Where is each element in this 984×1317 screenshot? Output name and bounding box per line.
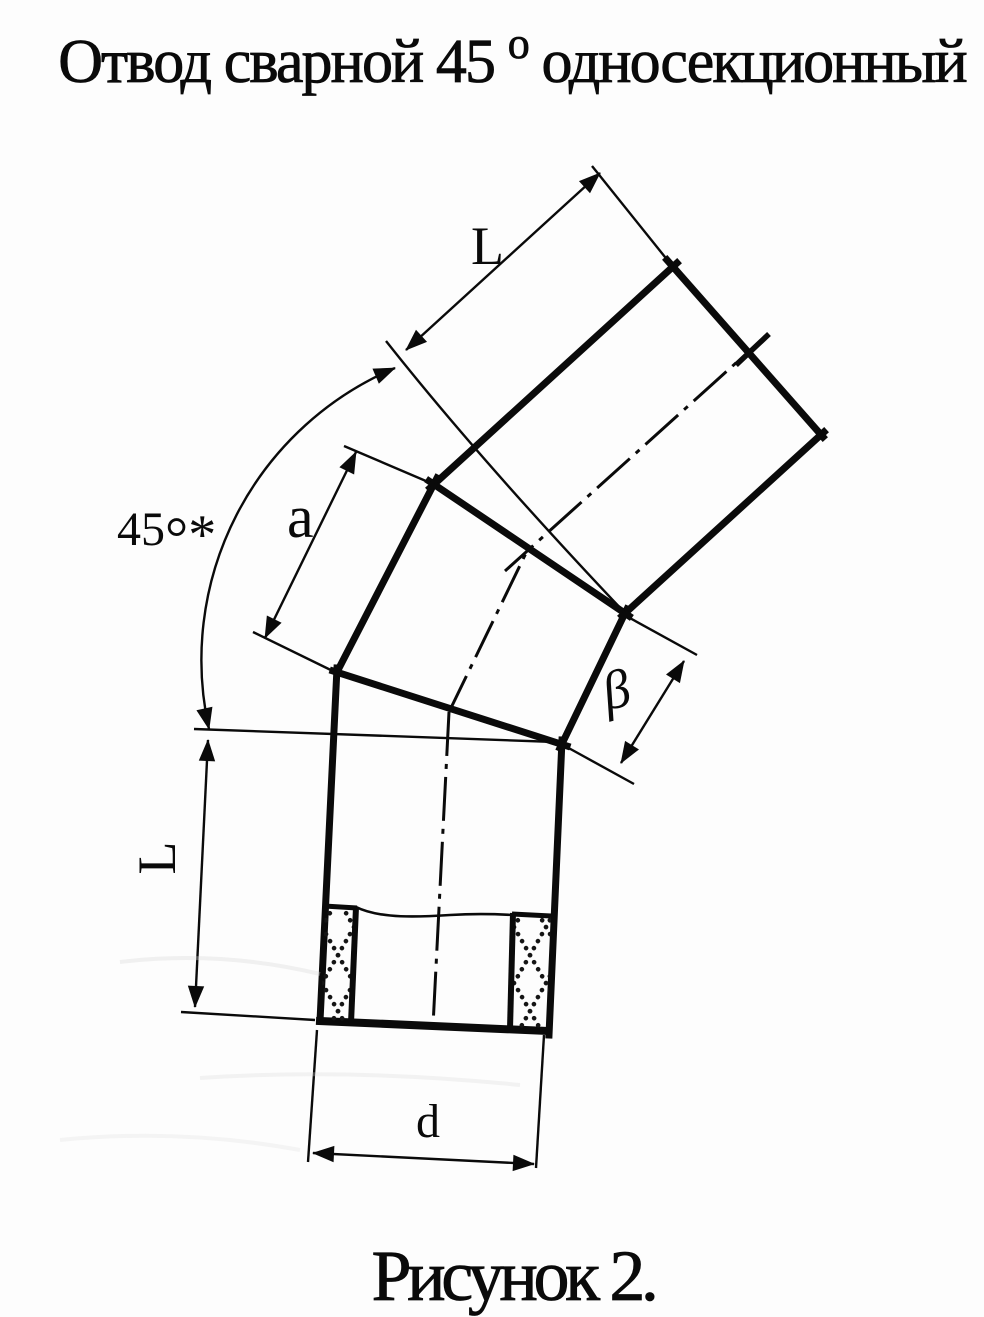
svg-text:Отвод сварной 45 о односекцион: Отвод сварной 45 о односекционный (58, 19, 966, 96)
svg-text:a: a (287, 484, 314, 550)
svg-text:45°*: 45°* (117, 503, 216, 570)
svg-text:Рисунок 2.: Рисунок 2. (371, 1236, 654, 1316)
svg-text:L: L (127, 842, 187, 875)
svg-text:d: d (416, 1095, 440, 1148)
svg-text:β: β (595, 657, 637, 722)
svg-text:L: L (471, 216, 504, 276)
